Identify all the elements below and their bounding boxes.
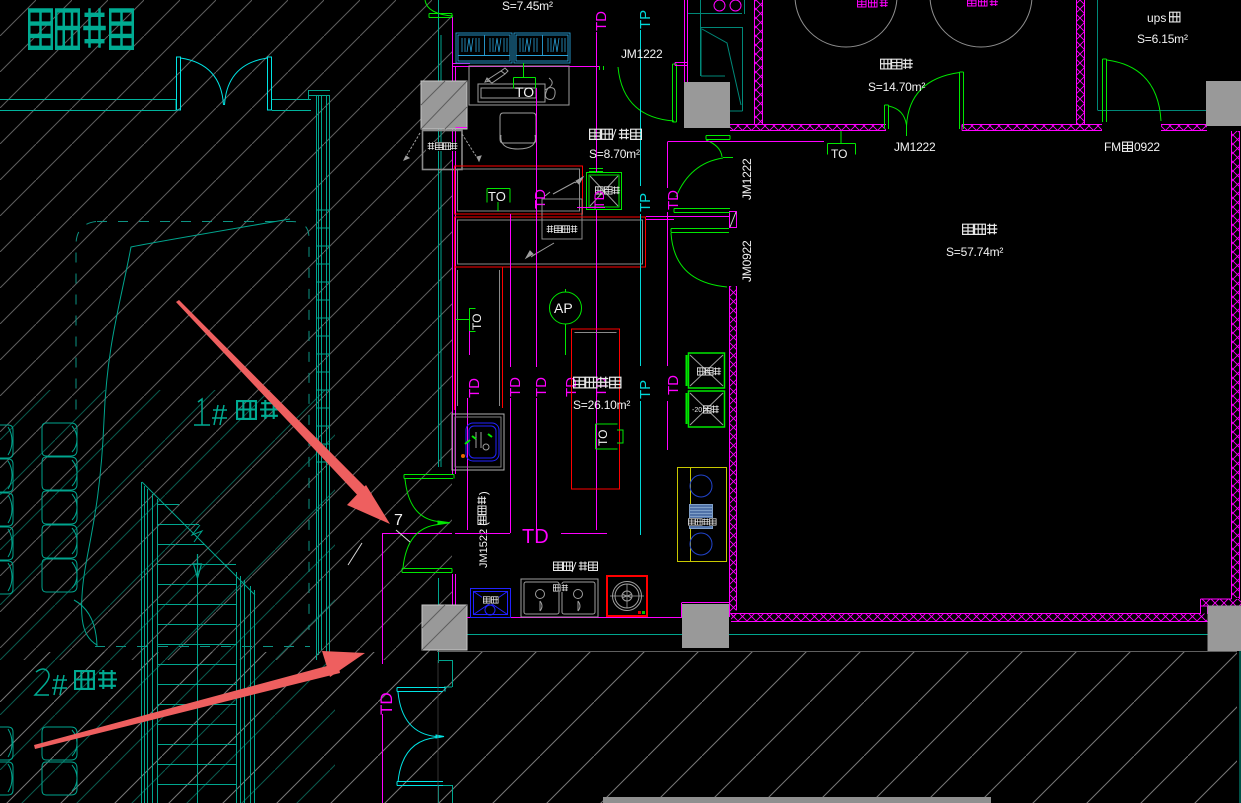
svg-text:JM1222: JM1222 xyxy=(894,140,936,154)
svg-text:JM1522 (: JM1522 ( xyxy=(478,522,490,568)
svg-text:S=57.74m²: S=57.74m² xyxy=(946,245,1003,259)
svg-text:): ) xyxy=(478,491,490,495)
svg-text:FM: FM xyxy=(1104,140,1121,154)
svg-text:TD: TD xyxy=(665,190,682,210)
svg-text:TP: TP xyxy=(637,380,654,399)
svg-text:-20: -20 xyxy=(692,407,702,414)
svg-text:TP: TP xyxy=(637,10,654,29)
svg-text:TD: TD xyxy=(591,190,607,209)
svg-text:TO: TO xyxy=(831,147,847,161)
svg-text:JM1222: JM1222 xyxy=(621,47,663,61)
svg-text:ups: ups xyxy=(1147,11,1166,25)
svg-text:JM1222: JM1222 xyxy=(740,158,754,200)
svg-text:S=6.15m²: S=6.15m² xyxy=(1137,32,1188,46)
svg-text:S=26.10m²: S=26.10m² xyxy=(573,398,630,412)
svg-text:TO: TO xyxy=(515,84,534,100)
svg-text:TP: TP xyxy=(637,193,654,212)
svg-text:S=7.45m²: S=7.45m² xyxy=(502,0,553,13)
svg-text:S=8.70m²: S=8.70m² xyxy=(589,147,640,161)
svg-text:TO: TO xyxy=(488,189,506,204)
svg-text:TD: TD xyxy=(522,526,549,548)
svg-text:TD: TD xyxy=(665,375,682,395)
svg-text:TD: TD xyxy=(593,377,610,397)
svg-text:0922: 0922 xyxy=(1134,140,1160,154)
svg-text:S=14.70m²: S=14.70m² xyxy=(868,80,925,94)
svg-text:TO: TO xyxy=(470,314,484,330)
svg-text:TO: TO xyxy=(596,430,610,446)
svg-text:TD: TD xyxy=(377,692,396,715)
svg-text:TD: TD xyxy=(466,378,483,398)
svg-text:7: 7 xyxy=(394,512,403,529)
svg-text:JM0922: JM0922 xyxy=(740,240,754,282)
svg-text:TD: TD xyxy=(533,377,550,397)
svg-text:TD: TD xyxy=(593,11,610,31)
svg-text:TD: TD xyxy=(507,377,524,397)
svg-text:AP: AP xyxy=(554,300,573,316)
